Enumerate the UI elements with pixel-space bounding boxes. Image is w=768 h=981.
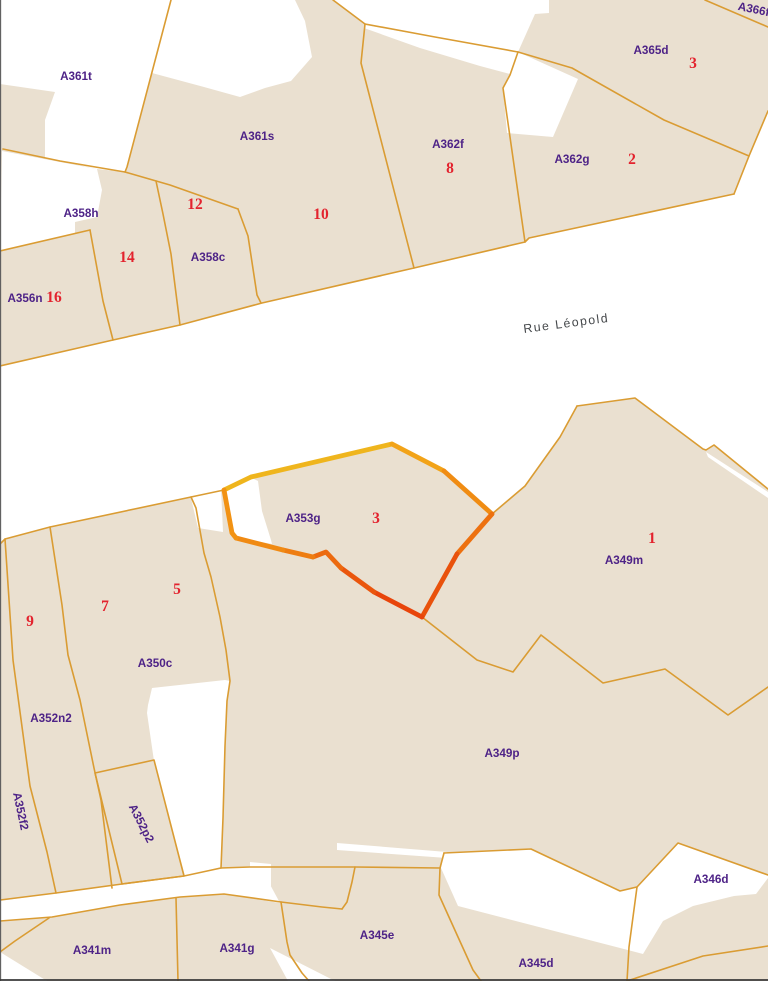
svg-text:A345e: A345e bbox=[360, 929, 395, 942]
svg-text:A361s: A361s bbox=[240, 130, 275, 143]
svg-text:8: 8 bbox=[446, 160, 454, 177]
svg-text:A345d: A345d bbox=[518, 957, 553, 970]
svg-text:A352n2: A352n2 bbox=[30, 712, 72, 725]
svg-text:A362g: A362g bbox=[554, 153, 589, 166]
svg-text:12: 12 bbox=[187, 196, 203, 213]
svg-text:A365d: A365d bbox=[633, 44, 668, 57]
svg-text:A346d: A346d bbox=[693, 873, 728, 886]
svg-text:7: 7 bbox=[101, 598, 109, 615]
svg-text:2: 2 bbox=[628, 151, 636, 168]
svg-text:A353g: A353g bbox=[285, 512, 320, 525]
svg-text:A350c: A350c bbox=[138, 657, 173, 670]
svg-text:A341g: A341g bbox=[219, 942, 254, 955]
svg-text:14: 14 bbox=[119, 249, 135, 266]
svg-text:A361t: A361t bbox=[60, 70, 92, 83]
svg-text:10: 10 bbox=[313, 206, 329, 223]
svg-text:A349m: A349m bbox=[605, 554, 643, 567]
svg-text:9: 9 bbox=[26, 613, 34, 630]
svg-text:A341m: A341m bbox=[73, 944, 111, 957]
svg-text:A356n: A356n bbox=[7, 292, 42, 305]
svg-text:5: 5 bbox=[173, 581, 181, 598]
svg-text:3: 3 bbox=[372, 510, 380, 527]
svg-text:3: 3 bbox=[689, 55, 697, 72]
svg-text:A349p: A349p bbox=[484, 747, 519, 760]
svg-text:A358h: A358h bbox=[63, 207, 98, 220]
svg-text:A358c: A358c bbox=[191, 251, 226, 264]
svg-text:1: 1 bbox=[648, 530, 656, 547]
svg-text:16: 16 bbox=[46, 289, 62, 306]
svg-text:A362f: A362f bbox=[432, 138, 464, 151]
